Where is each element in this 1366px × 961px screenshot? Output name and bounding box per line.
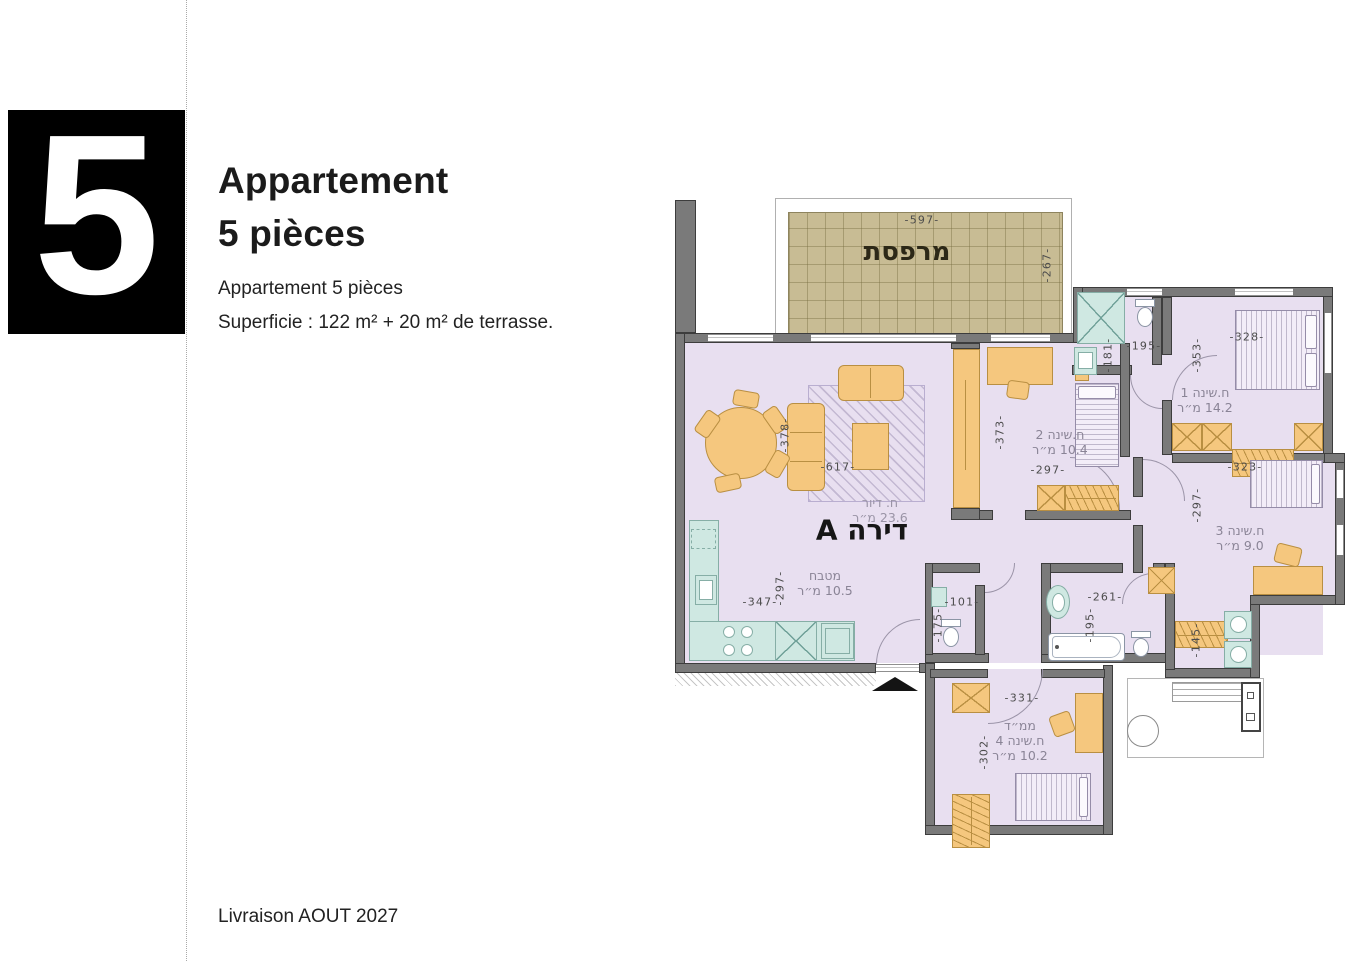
- wall: [1025, 510, 1131, 520]
- wall: [930, 563, 980, 573]
- dim-bed2-width: -297-: [1031, 464, 1066, 477]
- window: [1336, 525, 1344, 555]
- wall: [1041, 669, 1105, 678]
- window: [1336, 470, 1344, 498]
- page-number: 5: [33, 101, 160, 329]
- wardrobe-bed3: [1148, 567, 1175, 594]
- terrace-label: מרפסת: [863, 237, 950, 267]
- wall: [1133, 525, 1143, 573]
- coffee-table: [852, 423, 889, 470]
- dim-living-width: -617-: [821, 461, 856, 474]
- room-area: 10.2 מ״ר: [992, 748, 1047, 763]
- dim-shower-width: -195-: [1127, 340, 1162, 353]
- wardrobe-bed1: [1172, 423, 1202, 451]
- wardrobe-bed1: [1294, 423, 1323, 451]
- dim-kitchen-width: -347-: [743, 596, 778, 609]
- desk-chair-bed2: [1006, 380, 1030, 401]
- wall: [930, 669, 988, 678]
- room-area: 14.2 מ״ר: [1177, 400, 1232, 415]
- room-name: ח.שינה 3: [1216, 523, 1265, 538]
- wardrobe-bed4: [952, 794, 990, 848]
- panel-switch: [1246, 713, 1255, 721]
- page-number-box: 5: [8, 110, 185, 334]
- utility-panel: [1241, 682, 1261, 732]
- toilet-shower-room: [1135, 299, 1155, 307]
- wall: [675, 200, 696, 333]
- dim-bed4-width: -331-: [1005, 692, 1040, 705]
- room-label-bed4: ממ״ד ח.שינה 4 10.2 מ״ר: [992, 718, 1047, 763]
- bath-toilet: [1131, 631, 1151, 638]
- floor-plan: מרפסת -597- -267-: [675, 195, 1366, 855]
- tv-unit-partition: [953, 349, 980, 508]
- dryer-drum: [1230, 646, 1247, 663]
- window: [708, 334, 773, 342]
- dim-bath-depth: -195-: [1084, 608, 1097, 643]
- desk-bed3: [1253, 566, 1323, 595]
- apartment-label: דירה A: [816, 514, 908, 547]
- wc-toilet: [943, 627, 959, 647]
- dim-bed4-depth: -302-: [978, 735, 991, 770]
- wardrobe-bed1: [1202, 423, 1232, 451]
- dotted-divider: [186, 0, 187, 961]
- pillow: [1311, 464, 1320, 504]
- terrace-tiles: [788, 212, 1063, 338]
- room-name: ח.שינה 1: [1177, 385, 1232, 400]
- wall: [951, 508, 980, 520]
- bath-sink-basin: [1052, 593, 1065, 612]
- room-label-bed3: ח.שינה 3 9.0 מ״ר: [1216, 523, 1265, 553]
- wall: [1152, 297, 1162, 365]
- wardrobe-bed4: [952, 683, 990, 713]
- tv-unit-line: [965, 380, 966, 470]
- brochure-page: 5 Appartement 5 pièces Appartement 5 piè…: [0, 0, 1366, 961]
- dim-wc-width: -101-: [945, 596, 980, 609]
- room-name: ח.שינה 4: [992, 733, 1047, 748]
- room-name: מטבח: [797, 568, 852, 583]
- subtitle: Appartement 5 pièces: [218, 278, 403, 300]
- entrance-arrow-icon: [872, 677, 918, 691]
- entrance-threshold: [876, 664, 919, 672]
- dim-bed3-width: -323-: [1228, 461, 1263, 474]
- title-line2: 5 pièces: [218, 208, 448, 261]
- wardrobe-bed2: [1037, 485, 1065, 511]
- pillow: [1079, 777, 1088, 817]
- bath-toilet: [1133, 638, 1149, 657]
- dim-shower-depth: -181-: [1102, 338, 1115, 373]
- room-label-bed2: ח.שינה 2 10.4 מ״ר: [1032, 427, 1087, 457]
- wall: [1323, 453, 1345, 463]
- wall: [1041, 563, 1123, 573]
- room-label-bed1: ח.שינה 1 14.2 מ״ר: [1177, 385, 1232, 415]
- room-name: ח.שינה 2: [1032, 427, 1087, 442]
- stairwell-column: [1127, 715, 1159, 747]
- wall: [1162, 297, 1172, 355]
- toilet-shower-room: [1137, 307, 1153, 327]
- sofa-divider: [790, 461, 822, 462]
- page-title: Appartement 5 pièces: [218, 155, 448, 260]
- sofa-two-seat: [838, 365, 904, 401]
- wall: [1250, 595, 1345, 605]
- wall: [925, 663, 935, 835]
- dishwasher-door: [825, 628, 850, 654]
- dim-bed1-depth: -353-: [1191, 338, 1204, 373]
- dim-terrace-depth: -267-: [1041, 248, 1054, 283]
- room-area: 10.4 מ״ר: [1032, 442, 1087, 457]
- wall: [1165, 668, 1260, 678]
- pillow: [1305, 315, 1317, 349]
- pillow: [1078, 386, 1116, 399]
- room-prefix: ממ״ד: [992, 718, 1047, 733]
- washer-drum: [1230, 616, 1247, 633]
- window: [1324, 313, 1332, 373]
- bathtub-faucet: [1055, 645, 1059, 649]
- stove-burner: [741, 644, 753, 656]
- window: [1127, 288, 1162, 296]
- wall: [1133, 457, 1143, 497]
- delivery-text: Livraison AOUT 2027: [218, 906, 398, 928]
- kitchen-island-unit: [775, 621, 817, 661]
- pillow: [1305, 353, 1317, 387]
- ground-hatch: [675, 673, 876, 686]
- room-area: 9.0 מ״ר: [1216, 538, 1265, 553]
- dim-laundry-depth: -145-: [1190, 623, 1203, 658]
- dim-bed3-depth: -297-: [1191, 488, 1204, 523]
- dim-bed2-depth: -373-: [994, 415, 1007, 450]
- stove-burner: [741, 626, 753, 638]
- window: [811, 334, 956, 342]
- dim-bath-width: -261-: [1088, 591, 1123, 604]
- panel-switch: [1247, 692, 1254, 699]
- wall: [1120, 343, 1130, 457]
- room-label-kitchen: מטבח 10.5 מ״ר: [797, 568, 852, 598]
- wall: [675, 663, 876, 673]
- room-area: 10.5 מ״ר: [797, 583, 852, 598]
- stairs: [1172, 682, 1246, 702]
- desk-bed4: [1075, 693, 1103, 753]
- wall: [1103, 665, 1113, 835]
- stove-burner: [723, 626, 735, 638]
- dim-bed1-width: -328-: [1230, 331, 1265, 344]
- wall: [979, 510, 993, 520]
- fridge: [691, 529, 716, 549]
- dim-wc-depth: -175-: [932, 608, 945, 643]
- sofa-divider: [870, 368, 871, 398]
- dim-living-depth: -378-: [779, 418, 792, 453]
- title-line1: Appartement: [218, 155, 448, 208]
- wall: [1162, 400, 1172, 455]
- window: [1235, 288, 1293, 296]
- kitchen-sink-basin: [699, 580, 713, 600]
- sofa-three-seat: [787, 403, 825, 491]
- sofa-divider: [790, 432, 822, 433]
- stove-burner: [723, 644, 735, 656]
- wardrobe-bed2: [1065, 485, 1119, 511]
- vanity-sink: [1078, 352, 1093, 369]
- surface-text: Superficie : 122 m² + 20 m² de terrasse.: [218, 312, 553, 334]
- dim-terrace-width: -597-: [905, 214, 940, 227]
- wall: [675, 333, 685, 673]
- desk-bed2: [987, 347, 1053, 385]
- window: [991, 334, 1050, 342]
- shower-stall: [1077, 292, 1125, 344]
- room-name: ח. דיור: [852, 495, 907, 510]
